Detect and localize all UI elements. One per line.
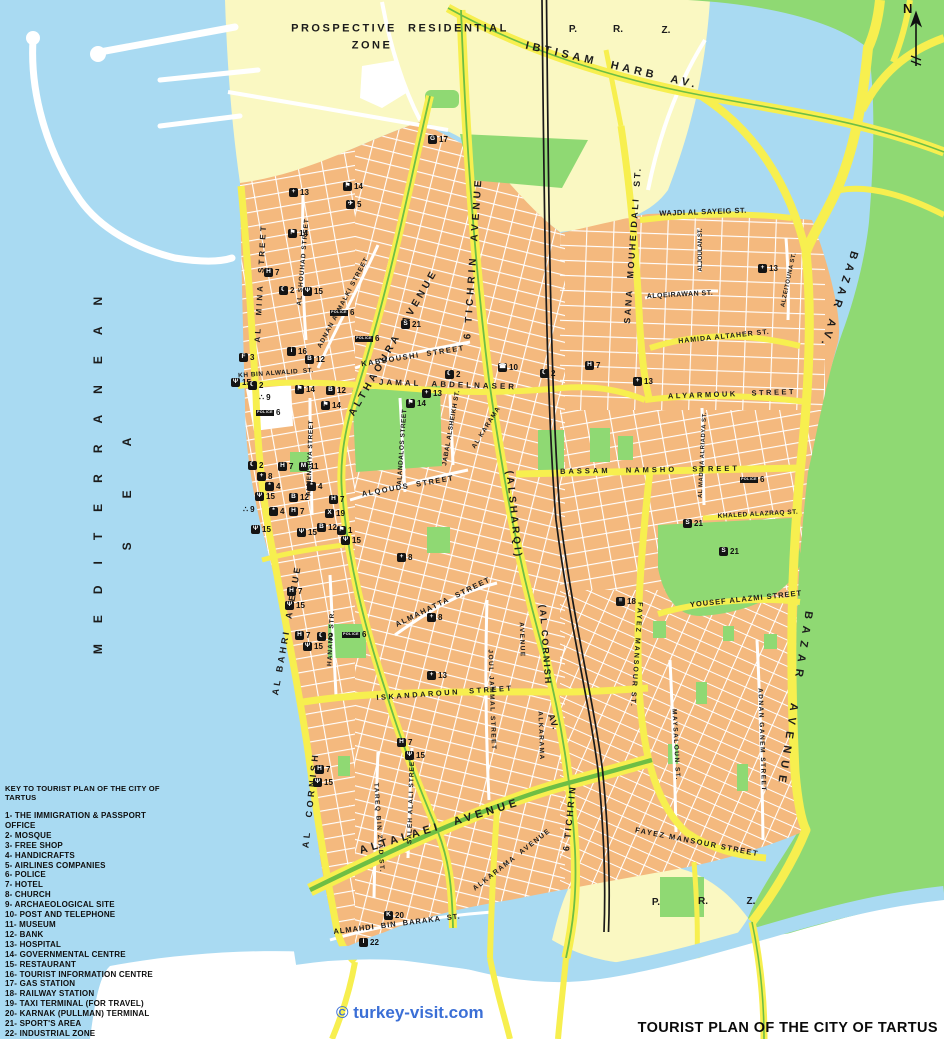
poi-14: ⚑14	[295, 385, 315, 394]
tartus-city-map: PROSPECTIVE RESIDENTIALZONEP.R.Z.P.R.Z.I…	[0, 0, 944, 1039]
poi-2: ☾2	[279, 286, 294, 295]
poi-icon-9: ∴	[259, 394, 264, 402]
poi-icon-2: ☾	[248, 461, 257, 470]
poi-icon-14: ⚑	[321, 401, 330, 410]
poi-number: 4	[318, 483, 322, 491]
poi-number: 15	[296, 602, 305, 610]
poi-icon-8: +	[397, 553, 406, 562]
legend-item: 5- AIRLINES COMPANIES	[5, 861, 163, 871]
poi-20: K20	[384, 911, 404, 920]
poi-number: 8	[268, 473, 272, 481]
poi-21: S21	[683, 519, 703, 528]
poi-number: 11	[310, 463, 318, 471]
poi-12: B12	[289, 493, 309, 502]
poi-15: Ψ15	[341, 536, 361, 545]
street-label: PROSPECTIVE RESIDENTIAL	[291, 24, 509, 35]
poi-14: ⚑14	[288, 229, 308, 238]
poi-number: 13	[769, 265, 778, 273]
poi-number: 19	[336, 510, 345, 518]
poi-icon-15: Ψ	[341, 536, 350, 545]
poi-number: 21	[412, 321, 421, 329]
poi-icon-13: +	[633, 377, 642, 386]
poi-15: Ψ15	[251, 525, 271, 534]
poi-21: S21	[401, 320, 421, 329]
legend-item: 7- HOTEL	[5, 880, 163, 890]
poi-icon-13: +	[289, 188, 298, 197]
poi-15: Ψ15	[303, 642, 323, 651]
poi-14: ⚑14	[321, 401, 341, 410]
poi-13: +13	[427, 671, 447, 680]
poi-9: ∴9	[259, 394, 271, 402]
poi-number: 12	[300, 494, 309, 502]
poi-icon-2: ☾	[445, 370, 454, 379]
poi-number: 18	[627, 598, 636, 606]
poi-8: +8	[397, 553, 412, 562]
street-label: MEDITERRANEAN	[92, 276, 104, 654]
poi-icon-10: ☎	[498, 363, 507, 372]
poi-icon-6: POLICE	[355, 336, 373, 342]
poi-icon-20: K	[384, 911, 393, 920]
poi-6: POLICE6	[256, 409, 280, 417]
poi-icon-12: B	[317, 523, 326, 532]
poi-icon-4: *	[307, 482, 316, 491]
poi-15: Ψ15	[285, 601, 305, 610]
poi-icon-18: ≡	[616, 597, 625, 606]
poi-number: 15	[314, 288, 323, 296]
poi-number: 4	[280, 508, 284, 516]
poi-icon-15: Ψ	[255, 492, 264, 501]
poi-icon-2: ☾	[317, 632, 326, 641]
poi-number: 14	[332, 402, 341, 410]
poi-3: F3	[239, 353, 254, 362]
poi-number: 15	[416, 752, 425, 760]
poi-icon-16: i	[287, 347, 296, 356]
poi-number: 7	[275, 269, 279, 277]
poi-icon-4: *	[265, 482, 274, 491]
street-label: AVENUE	[517, 622, 525, 658]
poi-22: I22	[359, 938, 379, 947]
poi-15: Ψ15	[297, 528, 317, 537]
map-legend: KEY TO TOURIST PLAN OF THE CITY OF TARTU…	[5, 784, 163, 1039]
poi-icon-15: Ψ	[231, 378, 240, 387]
poi-number: 2	[551, 370, 555, 378]
street-label: Z.	[747, 897, 756, 907]
poi-number: 14	[306, 386, 315, 394]
legend-items: 1- THE IMMIGRATION & PASSPORT OFFICE2- M…	[5, 811, 163, 1039]
poi-number: 2	[328, 633, 332, 641]
poi-21: S21	[719, 547, 739, 556]
poi-number: 9	[250, 506, 254, 514]
legend-item: 21- SPORT'S AREA	[5, 1019, 163, 1029]
poi-2: ☾2	[317, 632, 332, 641]
poi-number: 15	[324, 779, 333, 787]
poi-icon-9: ∴	[243, 506, 248, 514]
poi-number: 6	[276, 409, 280, 417]
poi-icon-6: POLICE	[330, 310, 348, 316]
poi-6: POLICE6	[342, 631, 366, 639]
poi-number: 8	[408, 554, 412, 562]
poi-number: 12	[337, 387, 346, 395]
poi-7: H7	[329, 495, 344, 504]
poi-13: +13	[422, 389, 442, 398]
poi-icon-15: Ψ	[297, 528, 306, 537]
poi-5: ✈5	[346, 200, 361, 209]
legend-item: 8- CHURCH	[5, 890, 163, 900]
poi-icon-6: POLICE	[256, 410, 274, 416]
legend-item: 14- GOVERNMENTAL CENTRE	[5, 950, 163, 960]
poi-4: *4	[265, 482, 280, 491]
poi-7: H7	[278, 462, 293, 471]
legend-item: 9- ARCHAEOLOGICAL SITE	[5, 900, 163, 910]
poi-number: 10	[509, 364, 518, 372]
poi-icon-7: H	[585, 361, 594, 370]
poi-number: 2	[259, 382, 263, 390]
poi-number: 14	[299, 230, 308, 238]
poi-number: 15	[262, 526, 271, 534]
poi-icon-22: I	[359, 938, 368, 947]
poi-icon-7: H	[397, 738, 406, 747]
poi-icon-6: POLICE	[740, 477, 758, 483]
poi-number: 14	[354, 183, 363, 191]
poi-number: 17	[439, 136, 448, 144]
street-label: R.	[698, 897, 708, 907]
poi-number: 15	[314, 643, 323, 651]
legend-item: 13- HOSPITAL	[5, 940, 163, 950]
legend-item: 22- INDUSTRIAL ZONE	[5, 1029, 163, 1039]
legend-item: 20- KARNAK (PULLMAN) TERMINAL	[5, 1009, 163, 1019]
map-title: TOURIST PLAN OF THE CITY OF TARTUS	[638, 1020, 938, 1036]
poi-icon-7: H	[295, 631, 304, 640]
poi-icon-15: Ψ	[303, 642, 312, 651]
street-label: P.	[569, 25, 577, 35]
poi-icon-2: ☾	[540, 369, 549, 378]
poi-icon-21: S	[683, 519, 692, 528]
poi-8: +8	[427, 613, 442, 622]
poi-number: 12	[316, 356, 325, 364]
poi-18: ≡18	[616, 597, 636, 606]
poi-icon-14: ⚑	[343, 182, 352, 191]
legend-item: 1- THE IMMIGRATION & PASSPORT OFFICE	[5, 811, 163, 831]
legend-item: 6- POLICE	[5, 870, 163, 880]
legend-item: 19- TAXI TERMINAL (FOR TRAVEL)	[5, 999, 163, 1009]
poi-icon-13: +	[758, 264, 767, 273]
poi-number: 15	[266, 493, 275, 501]
legend-title: KEY TO TOURIST PLAN OF THE CITY OF TARTU…	[5, 784, 163, 802]
legend-item: 11- MUSEUM	[5, 920, 163, 930]
poi-number: 7	[298, 588, 302, 596]
poi-icon-15: Ψ	[303, 287, 312, 296]
poi-number: 6	[760, 476, 764, 484]
poi-icon-12: B	[305, 355, 314, 364]
poi-12: B12	[305, 355, 325, 364]
poi-number: 7	[326, 766, 330, 774]
poi-12: B12	[326, 386, 346, 395]
poi-icon-1: ⚑	[337, 526, 346, 535]
street-label: R.	[613, 25, 623, 35]
poi-icon-7: H	[315, 765, 324, 774]
poi-14: ⚑14	[406, 399, 426, 408]
legend-item: 12- BANK	[5, 930, 163, 940]
poi-8: +8	[257, 472, 272, 481]
poi-number: 7	[300, 508, 304, 516]
street-label: ALKARAMA	[536, 711, 544, 761]
poi-number: 9	[266, 394, 270, 402]
legend-item: 17- GAS STATION	[5, 979, 163, 989]
poi-7: H7	[397, 738, 412, 747]
poi-13: +13	[633, 377, 653, 386]
poi-icon-15: Ψ	[251, 525, 260, 534]
poi-icon-19: X	[325, 509, 334, 518]
poi-6: POLICE6	[355, 335, 379, 343]
poi-2: ☾2	[248, 381, 263, 390]
poi-15: Ψ15	[255, 492, 275, 501]
poi-number: 13	[438, 672, 447, 680]
poi-icon-8: +	[427, 613, 436, 622]
poi-4: *4	[307, 482, 322, 491]
poi-2: ☾2	[248, 461, 263, 470]
legend-item: 2- MOSQUE	[5, 831, 163, 841]
poi-number: 7	[340, 496, 344, 504]
poi-icon-2: ☾	[279, 286, 288, 295]
poi-number: 6	[362, 631, 366, 639]
compass-north-label: N	[903, 1, 912, 16]
poi-number: 7	[596, 362, 600, 370]
poi-icon-6: POLICE	[342, 632, 360, 638]
poi-number: 4	[276, 483, 280, 491]
poi-number: 13	[300, 189, 309, 197]
poi-4: *4	[269, 507, 284, 516]
poi-icon-12: B	[326, 386, 335, 395]
poi-icon-15: Ψ	[313, 778, 322, 787]
poi-7: H7	[585, 361, 600, 370]
legend-item: 10- POST AND TELEPHONE	[5, 910, 163, 920]
poi-number: 21	[730, 548, 739, 556]
poi-number: 7	[306, 632, 310, 640]
poi-7: H7	[315, 765, 330, 774]
poi-icon-14: ⚑	[295, 385, 304, 394]
poi-number: 20	[395, 912, 404, 920]
poi-icon-14: ⚑	[288, 229, 297, 238]
legend-item: 4- HANDICRAFTS	[5, 851, 163, 861]
poi-17: G17	[428, 135, 448, 144]
legend-item: 3- FREE SHOP	[5, 841, 163, 851]
poi-icon-14: ⚑	[406, 399, 415, 408]
street-label: ALJOULAN ST.	[698, 228, 704, 271]
poi-number: 1	[348, 527, 352, 535]
poi-number: 15	[308, 529, 317, 537]
poi-icon-15: Ψ	[285, 601, 294, 610]
poi-number: 2	[456, 371, 460, 379]
poi-1: ⚑1	[337, 526, 352, 535]
poi-icon-2: ☾	[248, 381, 257, 390]
poi-7: H7	[295, 631, 310, 640]
poi-icon-7: H	[264, 268, 273, 277]
street-label: P.	[652, 898, 660, 908]
poi-number: 2	[290, 287, 294, 295]
poi-16: i16	[287, 347, 307, 356]
poi-13: +13	[758, 264, 778, 273]
poi-number: 15	[352, 537, 361, 545]
poi-icon-7: H	[278, 462, 287, 471]
poi-icon-15: Ψ	[405, 751, 414, 760]
poi-2: ☾2	[445, 370, 460, 379]
poi-icon-7: H	[287, 587, 296, 596]
poi-15: Ψ15	[303, 287, 323, 296]
poi-15: Ψ15	[313, 778, 333, 787]
poi-number: 5	[357, 201, 361, 209]
poi-7: H7	[264, 268, 279, 277]
poi-9: ∴9	[243, 506, 255, 514]
poi-2: ☾2	[540, 369, 555, 378]
poi-icon-7: H	[329, 495, 338, 504]
poi-6: POLICE6	[330, 309, 354, 317]
poi-number: 13	[644, 378, 653, 386]
poi-10: ☎10	[498, 363, 518, 372]
poi-15: Ψ15	[405, 751, 425, 760]
poi-icon-11: M	[299, 462, 308, 471]
legend-item: 18- RAILWAY STATION	[5, 989, 163, 999]
poi-number: 6	[375, 335, 379, 343]
street-label: SEA	[121, 394, 133, 551]
street-label: Z.	[662, 26, 671, 36]
poi-icon-17: G	[428, 135, 437, 144]
poi-icon-5: ✈	[346, 200, 355, 209]
poi-icon-7: H	[289, 507, 298, 516]
poi-number: 7	[289, 463, 293, 471]
poi-number: 12	[328, 524, 337, 532]
poi-number: 2	[259, 462, 263, 470]
poi-number: 3	[250, 354, 254, 362]
poi-number: 6	[350, 309, 354, 317]
poi-number: 13	[433, 390, 442, 398]
poi-13: +13	[289, 188, 309, 197]
poi-icon-21: S	[719, 547, 728, 556]
poi-number: 8	[438, 614, 442, 622]
poi-icon-12: B	[289, 493, 298, 502]
poi-7: H7	[287, 587, 302, 596]
poi-11: M11	[299, 462, 318, 471]
street-label: ZONE	[352, 41, 393, 52]
poi-icon-8: +	[257, 472, 266, 481]
poi-icon-3: F	[239, 353, 248, 362]
poi-12: B12	[317, 523, 337, 532]
poi-icon-21: S	[401, 320, 410, 329]
legend-item: 16- TOURIST INFORMATION CENTRE	[5, 970, 163, 980]
poi-19: X19	[325, 509, 345, 518]
poi-icon-13: +	[427, 671, 436, 680]
legend-item: 15- RESTAURANT	[5, 960, 163, 970]
poi-icon-4: *	[269, 507, 278, 516]
poi-6: POLICE6	[740, 476, 764, 484]
poi-number: 21	[694, 520, 703, 528]
poi-number: 22	[370, 939, 379, 947]
poi-14: ⚑14	[343, 182, 363, 191]
poi-number: 7	[408, 739, 412, 747]
poi-number: 14	[417, 400, 426, 408]
poi-icon-13: +	[422, 389, 431, 398]
poi-7: H7	[289, 507, 304, 516]
watermark-link[interactable]: © turkey-visit.com	[336, 1003, 484, 1023]
